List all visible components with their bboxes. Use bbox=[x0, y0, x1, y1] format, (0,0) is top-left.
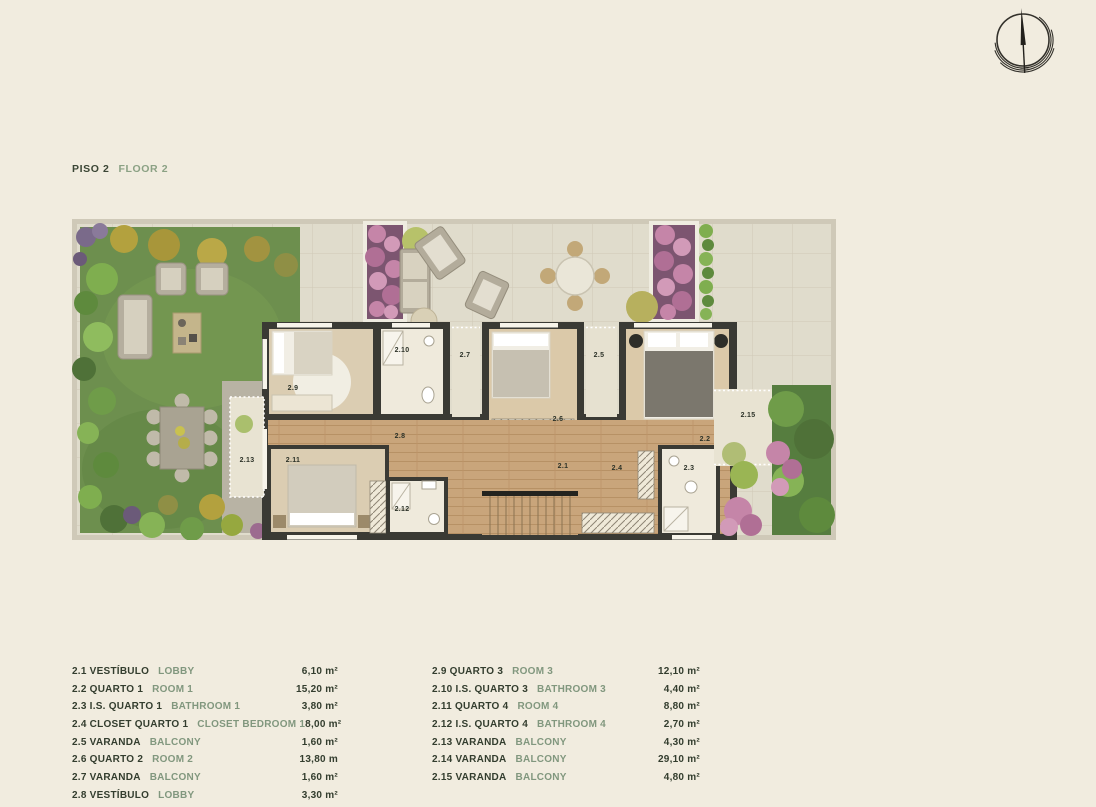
legend-label-pt: 2.8 VESTÍBULO bbox=[72, 787, 149, 805]
legend-area: 1,60 m² bbox=[302, 734, 338, 752]
legend-area: 29,10 m² bbox=[658, 751, 700, 769]
legend-area: 2,70 m² bbox=[664, 716, 700, 734]
legend-label-en: LOBBY bbox=[158, 663, 194, 681]
room-label: 2.5 bbox=[594, 352, 605, 359]
legend-label-en: BATHROOM 1 bbox=[171, 698, 240, 716]
legend-label-en: ROOM 3 bbox=[512, 663, 553, 681]
legend-label-en: BALCONY bbox=[516, 734, 567, 752]
legend-label-pt: 2.2 QUARTO 1 bbox=[72, 681, 143, 699]
legend-label-en: ROOM 4 bbox=[517, 698, 558, 716]
floor-plan: 2.1 2.2 2.3 2.4 2.5 2.6 2.7 2.8 2.9 2.10… bbox=[72, 219, 836, 540]
legend-area: 4,40 m² bbox=[664, 681, 700, 699]
room-label: 2.7 bbox=[460, 352, 471, 359]
page-title: PISO 2FLOOR 2 bbox=[72, 163, 168, 175]
legend-row: 2.10 I.S. QUARTO 3BATHROOM 34,40 m² bbox=[432, 681, 700, 699]
room-label: 2.8 bbox=[395, 433, 406, 440]
legend-label-en: BALCONY bbox=[516, 769, 567, 787]
balcony-2-13 bbox=[230, 397, 264, 497]
legend-row: 2.12 I.S. QUARTO 4BATHROOM 42,70 m² bbox=[432, 716, 700, 734]
legend-label-pt: 2.12 I.S. QUARTO 4 bbox=[432, 716, 528, 734]
legend-area: 12,10 m² bbox=[658, 663, 700, 681]
room-label: 2.9 bbox=[288, 385, 299, 392]
legend-area: 4,80 m² bbox=[664, 769, 700, 787]
legend-label-en: BALCONY bbox=[150, 734, 201, 752]
legend-row: 2.8 VESTÍBULOLOBBY3,30 m² bbox=[72, 787, 338, 805]
room-label: 2.4 bbox=[612, 465, 623, 472]
legend-area: 13,80 m bbox=[300, 751, 338, 769]
legend-row: 2.3 I.S. QUARTO 1BATHROOM 13,80 m² bbox=[72, 698, 338, 716]
legend-area: 3,80 m² bbox=[302, 698, 338, 716]
room-label: 2.15 bbox=[741, 412, 756, 419]
legend-label-pt: 2.5 VARANDA bbox=[72, 734, 141, 752]
room-label: 2.12 bbox=[395, 506, 410, 513]
legend-row: 2.11 QUARTO 4ROOM 48,80 m² bbox=[432, 698, 700, 716]
legend-label-pt: 2.9 QUARTO 3 bbox=[432, 663, 503, 681]
legend-label-pt: 2.7 VARANDA bbox=[72, 769, 141, 787]
compass-north-icon bbox=[985, 2, 1061, 78]
legend-label-en: BATHROOM 4 bbox=[537, 716, 606, 734]
room-label: 2.3 bbox=[684, 465, 695, 472]
legend-label-en: BATHROOM 3 bbox=[537, 681, 606, 699]
legend-area: 6,10 m² bbox=[302, 663, 338, 681]
room-label: 2.1 bbox=[558, 463, 569, 470]
staircase bbox=[482, 491, 578, 535]
legend-label-en: BALCONY bbox=[516, 751, 567, 769]
legend-row: 2.9 QUARTO 3ROOM 312,10 m² bbox=[432, 663, 700, 681]
room-label: 2.2 bbox=[700, 436, 711, 443]
legend-row: 2.2 QUARTO 1ROOM 115,20 m² bbox=[72, 681, 338, 699]
legend-row: 2.15 VARANDABALCONY4,80 m² bbox=[432, 769, 700, 787]
room-label: 2.10 bbox=[395, 347, 410, 354]
brochure-page: { "theme": { "background": "#f1ecdf", "t… bbox=[0, 0, 1096, 807]
legend-row: 2.14 VARANDABALCONY29,10 m² bbox=[432, 751, 700, 769]
floor-plan-drawing: 2.1 2.2 2.3 2.4 2.5 2.6 2.7 2.8 2.9 2.10… bbox=[72, 219, 836, 540]
room-quarto3 bbox=[269, 329, 373, 414]
legend-label-en: CLOSET BEDROOM 1 bbox=[197, 716, 305, 734]
balcony-2-5 bbox=[586, 326, 617, 417]
room-label: 2.6 bbox=[553, 416, 564, 423]
room-label: 2.13 bbox=[240, 457, 255, 464]
bathroom-2-3 bbox=[660, 447, 718, 535]
legend-row: 2.4 CLOSET QUARTO 1CLOSET BEDROOM 18,00 … bbox=[72, 716, 338, 734]
legend-label-pt: 2.10 I.S. QUARTO 3 bbox=[432, 681, 528, 699]
legend-label-pt: 2.13 VARANDA bbox=[432, 734, 507, 752]
legend-label-pt: 2.6 QUARTO 2 bbox=[72, 751, 143, 769]
legend-label-pt: 2.1 VESTÍBULO bbox=[72, 663, 149, 681]
legend-row: 2.6 QUARTO 2ROOM 213,80 m bbox=[72, 751, 338, 769]
compass bbox=[985, 2, 1061, 78]
legend-right-column: 2.9 QUARTO 3ROOM 312,10 m² 2.10 I.S. QUA… bbox=[432, 663, 700, 787]
legend-label-en: ROOM 1 bbox=[152, 681, 193, 699]
legend-row: 2.7 VARANDABALCONY1,60 m² bbox=[72, 769, 338, 787]
legend-label-en: LOBBY bbox=[158, 787, 194, 805]
legend-label-en: BALCONY bbox=[150, 769, 201, 787]
legend-label-pt: 2.11 QUARTO 4 bbox=[432, 698, 508, 716]
legend-row: 2.5 VARANDABALCONY1,60 m² bbox=[72, 734, 338, 752]
legend-label-pt: 2.4 CLOSET QUARTO 1 bbox=[72, 716, 188, 734]
closet-hatch bbox=[370, 481, 386, 533]
compass-needle bbox=[1017, 8, 1028, 73]
floor-label-pt: PISO 2 bbox=[72, 163, 109, 175]
legend-label-en: ROOM 2 bbox=[152, 751, 193, 769]
legend-area: 8,00 m² bbox=[305, 716, 341, 734]
room-label: 2.11 bbox=[286, 457, 300, 464]
legend-left-column: 2.1 VESTÍBULOLOBBY6,10 m² 2.2 QUARTO 1RO… bbox=[72, 663, 338, 805]
legend-area: 8,80 m² bbox=[664, 698, 700, 716]
legend-area: 3,30 m² bbox=[302, 787, 338, 805]
legend-area: 1,60 m² bbox=[302, 769, 338, 787]
legend-label-pt: 2.3 I.S. QUARTO 1 bbox=[72, 698, 162, 716]
balcony-2-7 bbox=[452, 326, 480, 417]
bathroom-2-10 bbox=[381, 329, 443, 414]
legend-row: 2.13 VARANDABALCONY4,30 m² bbox=[432, 734, 700, 752]
legend-label-pt: 2.15 VARANDA bbox=[432, 769, 507, 787]
legend-area: 15,20 m² bbox=[296, 681, 338, 699]
legend-label-pt: 2.14 VARANDA bbox=[432, 751, 507, 769]
legend-area: 4,30 m² bbox=[664, 734, 700, 752]
legend-row: 2.1 VESTÍBULOLOBBY6,10 m² bbox=[72, 663, 338, 681]
floor-label-en: FLOOR 2 bbox=[118, 163, 168, 175]
